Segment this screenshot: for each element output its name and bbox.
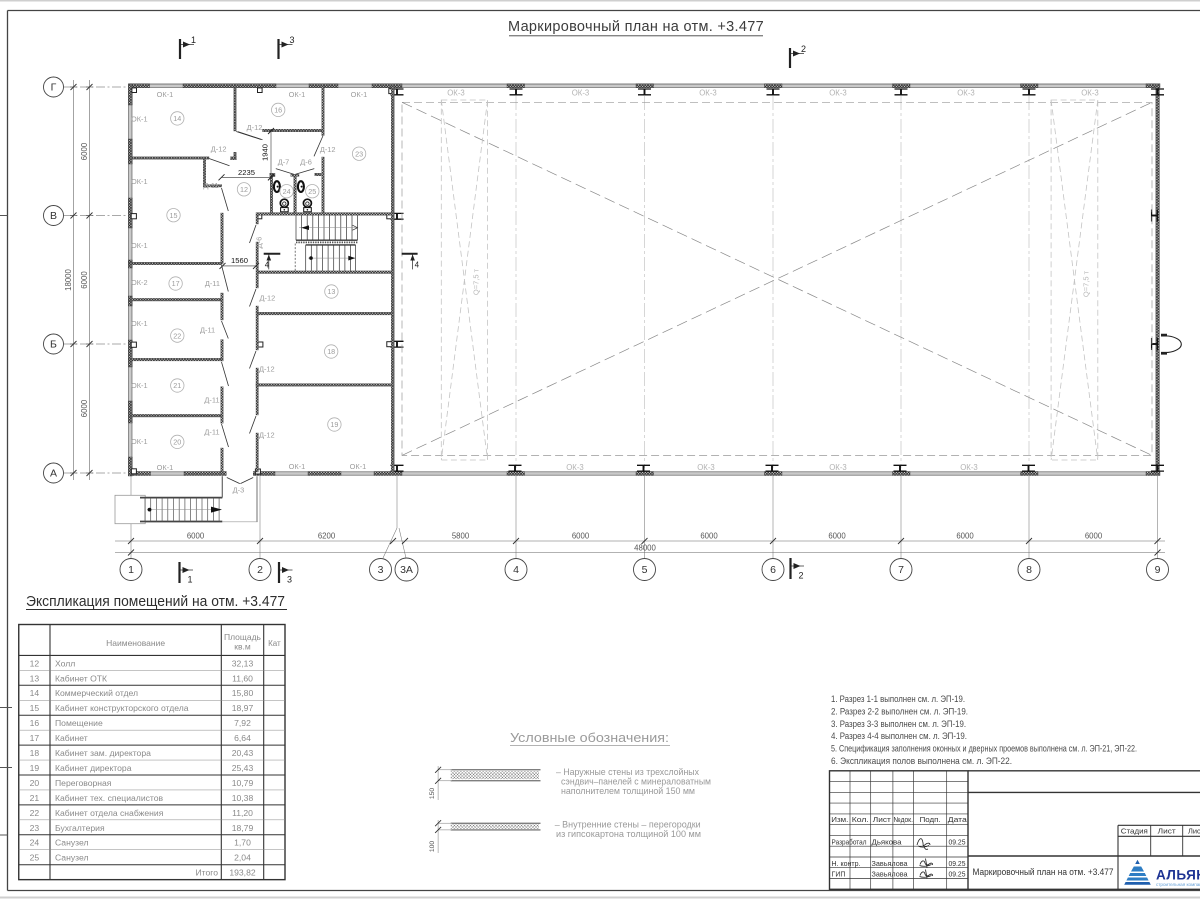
svg-text:Коммерческий отдел: Коммерческий отдел [55, 688, 138, 698]
svg-text:Д-7: Д-7 [278, 158, 290, 167]
svg-text:Кабинет зам. директора: Кабинет зам. директора [55, 748, 151, 758]
svg-text:Дьякова: Дьякова [872, 837, 902, 846]
svg-text:14: 14 [173, 114, 181, 123]
svg-text:15: 15 [170, 211, 178, 220]
svg-text:Кабинет ОТК: Кабинет ОТК [55, 673, 107, 683]
svg-text:Д-12: Д-12 [259, 430, 275, 439]
svg-text:ОК-1: ОК-1 [131, 319, 148, 328]
svg-text:АЛЬЯНС: АЛЬЯНС [1156, 868, 1200, 883]
svg-text:4: 4 [415, 261, 420, 270]
svg-text:48000: 48000 [634, 544, 656, 553]
svg-text:18: 18 [30, 748, 40, 758]
svg-text:6,64: 6,64 [234, 733, 251, 743]
svg-text:Изм.: Изм. [831, 815, 848, 824]
svg-text:193,82: 193,82 [229, 868, 256, 878]
svg-text:32,13: 32,13 [232, 658, 254, 668]
svg-text:Дата: Дата [948, 815, 967, 824]
svg-text:ОК-1: ОК-1 [131, 241, 148, 250]
svg-text:11,20: 11,20 [232, 808, 253, 818]
svg-text:Q=7,5 т: Q=7,5 т [472, 268, 481, 295]
svg-text:– Внутренние стены – перегород: – Внутренние стены – перегородки [555, 820, 701, 830]
svg-text:13: 13 [327, 287, 335, 296]
svg-text:Листов: Листов [1188, 827, 1200, 836]
svg-text:ОК-3: ОК-3 [697, 463, 715, 472]
svg-text:Площадь: Площадь [224, 632, 262, 642]
svg-text:ОК-1: ОК-1 [131, 177, 148, 186]
svg-text:ОК-1: ОК-1 [350, 462, 367, 471]
svg-text:18,97: 18,97 [232, 703, 254, 713]
svg-text:ОК-3: ОК-3 [960, 463, 978, 472]
svg-text:11,60: 11,60 [232, 673, 253, 683]
svg-text:Д-11: Д-11 [204, 428, 219, 437]
svg-text:19: 19 [330, 420, 338, 429]
svg-text:5: 5 [642, 564, 648, 576]
svg-text:2,04: 2,04 [234, 853, 251, 863]
svg-text:Кабинет: Кабинет [55, 733, 88, 743]
svg-text:ОК-3: ОК-3 [447, 89, 465, 98]
svg-text:10,38: 10,38 [232, 793, 254, 803]
svg-text:20: 20 [173, 438, 181, 447]
svg-text:14: 14 [30, 688, 40, 698]
svg-text:19: 19 [30, 763, 40, 773]
svg-text:Стадия: Стадия [1121, 827, 1148, 836]
svg-text:Кабинет отдела снабжения: Кабинет отдела снабжения [55, 808, 164, 818]
svg-text:3. Разрез 3-3 выполнен см. л.: 3. Разрез 3-3 выполнен см. л. ЭП-19. [831, 719, 966, 729]
svg-text:ОК-1: ОК-1 [131, 381, 148, 390]
svg-text:17: 17 [30, 733, 40, 743]
svg-text:1. Разрез 1-1 выполнен см. л.: 1. Разрез 1-1 выполнен см. л. ЭП-19. [831, 694, 965, 704]
svg-text:Санузел: Санузел [55, 838, 88, 848]
svg-text:7,92: 7,92 [234, 718, 251, 728]
svg-text:Итого: Итого [195, 868, 218, 878]
svg-text:6200: 6200 [318, 532, 336, 541]
svg-text:1560: 1560 [231, 256, 248, 265]
svg-text:Д-11: Д-11 [204, 396, 219, 405]
svg-text:Условные обозначения:: Условные обозначения: [510, 730, 669, 745]
svg-text:20: 20 [30, 778, 40, 788]
svg-text:6000: 6000 [187, 532, 205, 541]
svg-text:5. Спецификация заполнения око: 5. Спецификация заполнения оконных и две… [831, 744, 1137, 754]
svg-text:ОК-3: ОК-3 [699, 89, 717, 98]
svg-text:кв.м: кв.м [234, 642, 251, 652]
svg-text:25,43: 25,43 [232, 763, 254, 773]
svg-text:Бухгалтерия: Бухгалтерия [55, 823, 105, 833]
svg-text:Д-12: Д-12 [320, 145, 336, 154]
svg-text:ОК-1: ОК-1 [351, 90, 368, 99]
svg-text:Д-12: Д-12 [247, 123, 263, 132]
svg-text:22: 22 [173, 331, 181, 340]
svg-text:23: 23 [355, 149, 363, 158]
svg-text:25: 25 [308, 187, 316, 196]
svg-text:А: А [50, 468, 57, 480]
svg-text:ОК-3: ОК-3 [957, 89, 975, 98]
svg-text:Завьялова: Завьялова [872, 870, 908, 879]
svg-text:Д-3: Д-3 [233, 486, 245, 495]
svg-text:Д-11: Д-11 [203, 181, 218, 190]
svg-text:18000: 18000 [64, 268, 73, 290]
svg-text:4: 4 [265, 261, 270, 270]
svg-text:Д-11: Д-11 [205, 279, 220, 288]
svg-text:6: 6 [770, 564, 776, 576]
svg-text:1: 1 [191, 35, 196, 45]
svg-text:4. Разрез 4-4 выполнен см. л.: 4. Разрез 4-4 выполнен см. л. ЭП-19. [831, 731, 967, 741]
svg-text:Маркировочный план на отм. +3.: Маркировочный план на отм. +3.477 [508, 19, 764, 35]
svg-text:09.25: 09.25 [949, 870, 966, 879]
svg-text:6000: 6000 [828, 532, 846, 541]
svg-text:5800: 5800 [452, 532, 470, 541]
svg-text:из гипсокартона толщиной 100 м: из гипсокартона толщиной 100 мм [556, 829, 701, 839]
svg-text:18: 18 [327, 347, 335, 356]
svg-text:7: 7 [898, 564, 904, 576]
svg-text:ОК-1: ОК-1 [131, 437, 148, 446]
svg-text:21: 21 [30, 793, 40, 803]
svg-text:ОК-3: ОК-3 [829, 89, 847, 98]
svg-text:ГИП: ГИП [832, 870, 846, 879]
svg-text:Д-12: Д-12 [211, 144, 227, 153]
svg-text:16: 16 [274, 106, 282, 115]
svg-text:ОК-3: ОК-3 [566, 463, 584, 472]
svg-text:6000: 6000 [80, 399, 89, 417]
svg-text:Д-12: Д-12 [259, 365, 275, 374]
svg-text:8: 8 [1026, 564, 1032, 576]
svg-text:1940: 1940 [261, 144, 270, 161]
svg-text:Кабинет директора: Кабинет директора [55, 763, 132, 773]
svg-text:Разработал: Разработал [832, 837, 867, 846]
svg-text:Санузел: Санузел [55, 853, 88, 863]
svg-text:12: 12 [240, 185, 248, 194]
svg-text:Переговорная: Переговорная [55, 778, 112, 788]
svg-text:20,43: 20,43 [232, 748, 254, 758]
svg-text:ОК-2: ОК-2 [131, 278, 148, 287]
svg-text:6000: 6000 [1085, 532, 1103, 541]
svg-text:09.25: 09.25 [949, 859, 966, 868]
svg-text:1: 1 [188, 575, 193, 585]
svg-text:15,80: 15,80 [232, 688, 254, 698]
svg-text:23: 23 [30, 823, 40, 833]
svg-text:Б: Б [50, 339, 57, 351]
svg-text:Д-6: Д-6 [300, 158, 312, 167]
svg-text:ОК-1: ОК-1 [289, 90, 306, 99]
svg-text:№док.: №док. [893, 815, 913, 824]
svg-text:ОК-1: ОК-1 [157, 90, 174, 99]
svg-text:16: 16 [30, 718, 40, 728]
svg-text:12: 12 [30, 658, 40, 668]
svg-text:100: 100 [429, 841, 436, 853]
svg-text:– Наружные стены из трехслойны: – Наружные стены из трехслойных [556, 767, 699, 777]
svg-text:Наименование: Наименование [106, 638, 165, 648]
svg-text:Кабинет тех. специалистов: Кабинет тех. специалистов [55, 793, 164, 803]
svg-text:ОК-1: ОК-1 [157, 463, 174, 472]
svg-text:2: 2 [799, 571, 804, 581]
svg-text:Лист: Лист [1158, 827, 1177, 836]
svg-text:09.25: 09.25 [949, 837, 966, 846]
svg-text:2. Разрез 2-2 выполнен см. л.: 2. Разрез 2-2 выполнен см. л. ЭП-19. [831, 706, 968, 716]
svg-text:Экспликация помещений на отм.: Экспликация помещений на отм. +3.477 [26, 594, 285, 610]
svg-text:строительная компания: строительная компания [1156, 882, 1200, 887]
svg-text:17: 17 [172, 279, 180, 288]
svg-text:Г: Г [51, 82, 57, 94]
svg-text:6000: 6000 [700, 532, 718, 541]
svg-text:6000: 6000 [956, 532, 974, 541]
svg-text:22: 22 [30, 808, 40, 818]
svg-text:Кабинет конструкторского отдел: Кабинет конструкторского отдела [55, 703, 189, 713]
svg-text:6000: 6000 [80, 142, 89, 160]
svg-text:ОК-1: ОК-1 [289, 462, 306, 471]
svg-text:3А: 3А [400, 564, 413, 576]
svg-text:сэндвич–панелей с минераловатн: сэндвич–панелей с минераловатным [561, 777, 711, 787]
svg-text:Д-6: Д-6 [254, 237, 263, 249]
svg-text:Кат: Кат [268, 639, 281, 648]
svg-text:В: В [50, 210, 57, 222]
svg-text:6000: 6000 [80, 271, 89, 289]
svg-text:6000: 6000 [572, 532, 590, 541]
svg-text:150: 150 [429, 788, 436, 800]
svg-text:1: 1 [128, 564, 134, 576]
svg-text:10,79: 10,79 [232, 778, 254, 788]
svg-text:1,70: 1,70 [234, 838, 251, 848]
svg-text:Маркировочный план на отм. +3.: Маркировочный план на отм. +3.477 [973, 867, 1114, 877]
svg-text:ОК-3: ОК-3 [829, 463, 847, 472]
svg-text:Д-11: Д-11 [200, 325, 215, 334]
svg-text:наполнителем толщиной 150 мм: наполнителем толщиной 150 мм [561, 786, 695, 796]
svg-text:ОК-1: ОК-1 [131, 115, 148, 124]
svg-text:4: 4 [513, 564, 519, 576]
svg-text:3: 3 [287, 575, 292, 585]
svg-text:15: 15 [30, 703, 40, 713]
svg-text:ОК-3: ОК-3 [1081, 89, 1099, 98]
svg-text:24: 24 [30, 838, 40, 848]
svg-text:18,79: 18,79 [232, 823, 254, 833]
svg-text:3: 3 [378, 564, 384, 576]
svg-text:Н. контр.: Н. контр. [832, 859, 861, 868]
svg-text:2235: 2235 [238, 168, 255, 177]
svg-text:Холл: Холл [55, 658, 75, 668]
svg-text:25: 25 [30, 853, 40, 863]
svg-text:6. Экспликация полов выполнена: 6. Экспликация полов выполнена см. л. ЭП… [831, 756, 1012, 766]
svg-text:3: 3 [290, 35, 295, 45]
svg-text:21: 21 [173, 381, 181, 390]
svg-text:24: 24 [283, 187, 291, 196]
svg-text:2: 2 [801, 44, 806, 54]
svg-text:Q=7,5 т: Q=7,5 т [1082, 270, 1091, 297]
svg-text:2: 2 [257, 564, 263, 576]
svg-text:9: 9 [1155, 564, 1161, 576]
svg-text:Помещение: Помещение [55, 718, 103, 728]
svg-text:Кол.: Кол. [852, 815, 869, 824]
svg-text:Подп.: Подп. [920, 815, 941, 824]
svg-text:ОК-3: ОК-3 [572, 89, 590, 98]
svg-text:Завьялова: Завьялова [872, 859, 908, 868]
svg-text:Лист: Лист [873, 815, 892, 824]
svg-text:Д-12: Д-12 [260, 294, 276, 303]
svg-text:13: 13 [30, 673, 40, 683]
